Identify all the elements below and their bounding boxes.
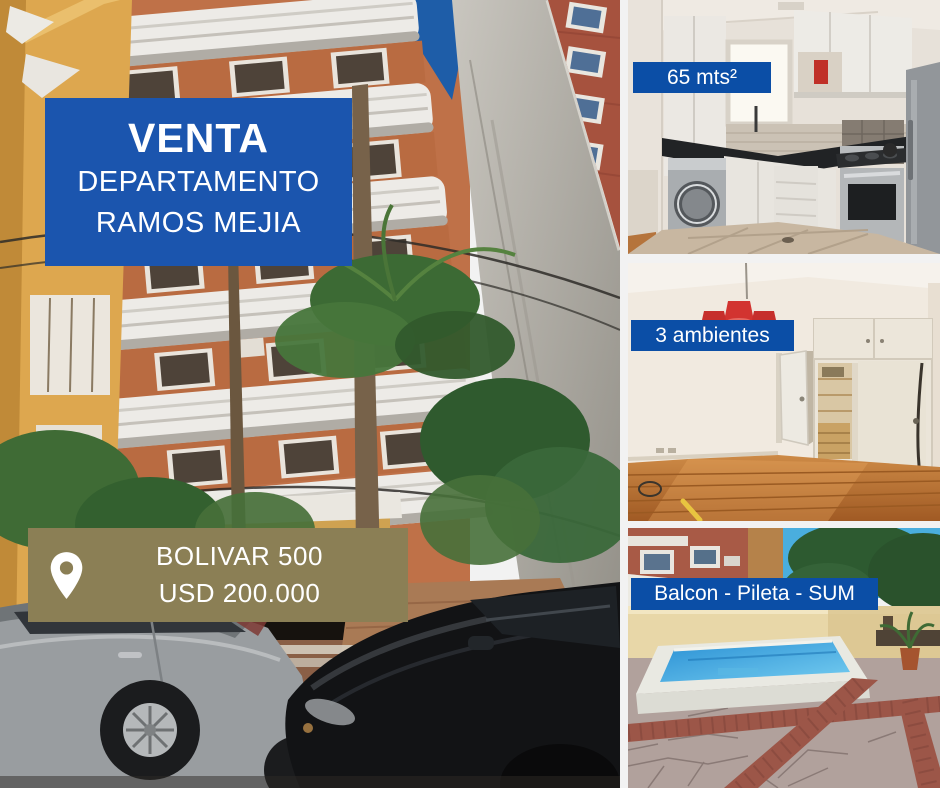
kitchen-illustration [628,0,940,254]
amenities-tag: Balcon - Pileta - SUM [631,578,878,610]
bedroom-photo: 3 ambientes [628,263,940,521]
area-tag: 65 mts² [633,62,771,93]
rooms-tag: 3 ambientes [631,320,794,351]
sale-subtitle-location: RAMOS MEJIA [45,203,352,244]
address-line: BOLIVAR 500 [83,538,396,575]
sale-subtitle-type: DEPARTAMENTO [45,162,352,203]
building-exterior-photo: VENTA DEPARTAMENTO RAMOS MEJIA BOLIVAR 5… [0,0,620,788]
address-banner: BOLIVAR 500 USD 200.000 [28,528,408,622]
sale-title: VENTA [45,114,352,162]
pool-patio-illustration [628,528,940,788]
property-listing-flyer: VENTA DEPARTAMENTO RAMOS MEJIA BOLIVAR 5… [0,0,940,788]
sale-banner: VENTA DEPARTAMENTO RAMOS MEJIA [45,98,352,266]
location-pin-icon [50,550,83,601]
address-text: BOLIVAR 500 USD 200.000 [83,538,408,612]
price-line: USD 200.000 [83,575,396,612]
pool-patio-photo: Balcon - Pileta - SUM [628,528,940,788]
kitchen-photo: 65 mts² [628,0,940,254]
bedroom-illustration [628,263,940,521]
